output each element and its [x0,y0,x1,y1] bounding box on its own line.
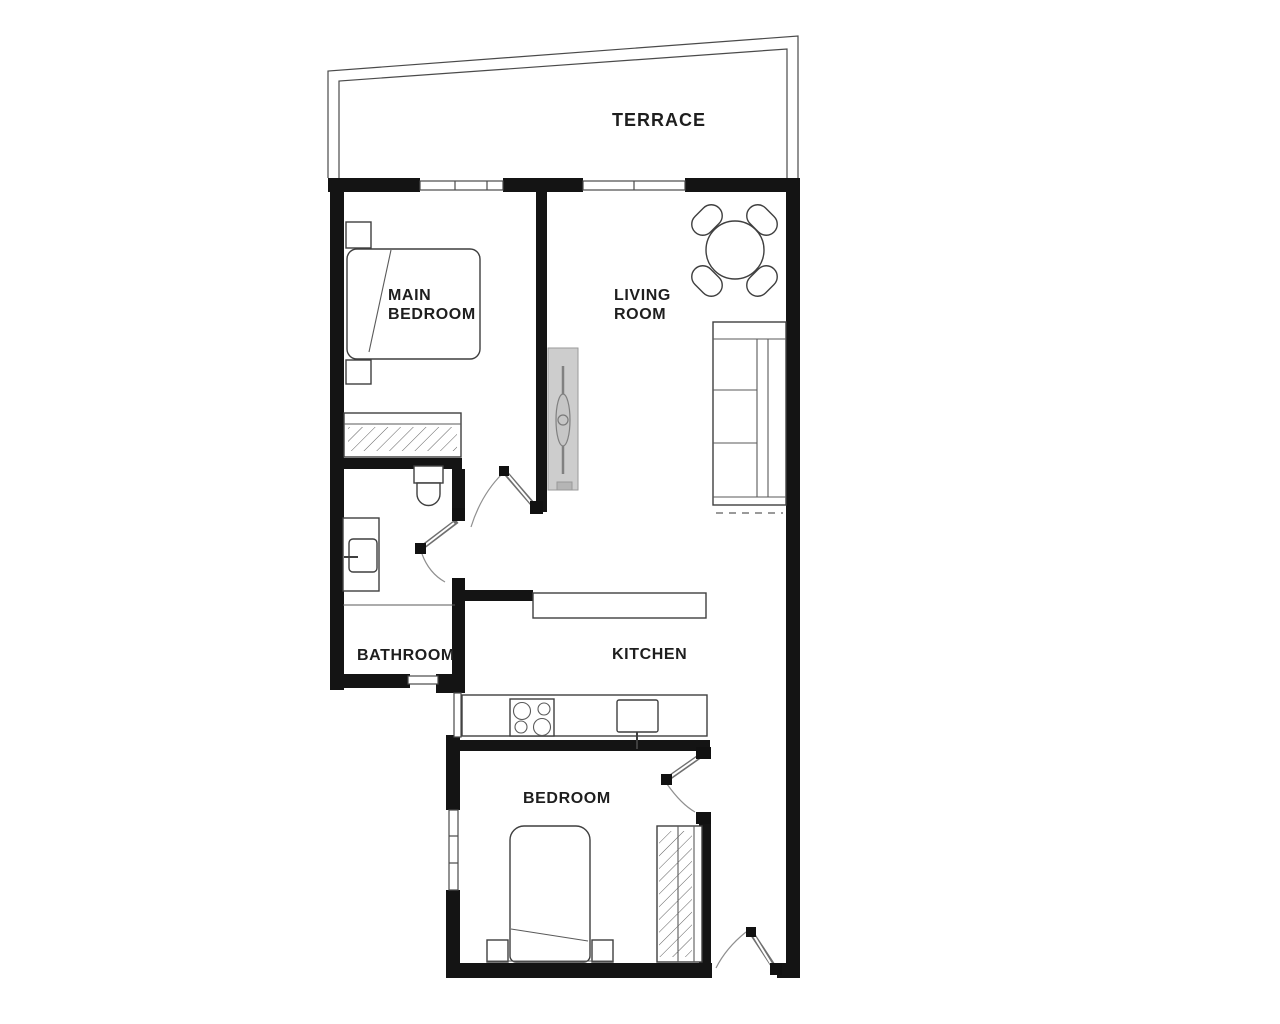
kitchen-counter-icon [462,593,707,736]
sofa-icon [713,322,786,513]
door-swing-icon [471,466,543,527]
bathroom-label: BATHROOM [357,647,455,664]
floor-plan-drawing: TERRACE MAIN BEDROOM LIVING ROOM BATHROO… [0,0,1280,1024]
door-swing-icon [661,747,711,824]
dining-table-icon [687,200,782,301]
living-room-label-line2: ROOM [614,306,666,323]
wardrobe-icon [344,413,461,457]
door-frame-hinge [452,578,465,590]
kitchen-label: KITCHEN [612,646,687,663]
window-icon [449,810,458,890]
washbasin-icon [343,518,455,605]
wardrobe-icon [657,826,702,962]
main-bedroom-label-line1: MAIN [388,287,431,304]
living-room-label-line1: LIVING [614,287,671,304]
bedroom-label: BEDROOM [523,790,611,807]
main-bedroom-label-line2: BEDROOM [388,306,476,323]
hob-icon [510,699,554,736]
terrace-outline [328,36,798,178]
single-bed-icon [487,826,613,962]
window-icon [583,181,685,190]
door-swing-icon [716,927,782,975]
tv-cabinet-icon [548,348,578,490]
window-icon [420,181,503,190]
door-swing-icon [415,508,465,582]
floor-plan-page: TERRACE MAIN BEDROOM LIVING ROOM BATHROO… [0,0,1280,1024]
terrace-label: TERRACE [612,110,706,130]
toilet-icon [414,466,443,506]
